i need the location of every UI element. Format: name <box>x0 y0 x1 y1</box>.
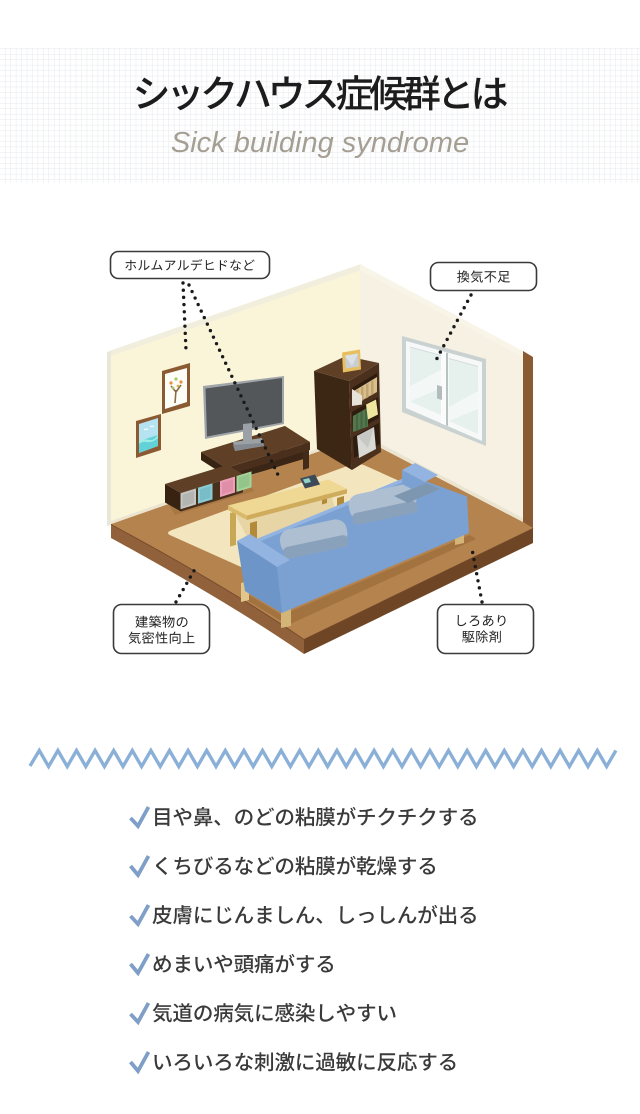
svg-text:Sick building syndrome: Sick building syndrome <box>171 127 469 159</box>
